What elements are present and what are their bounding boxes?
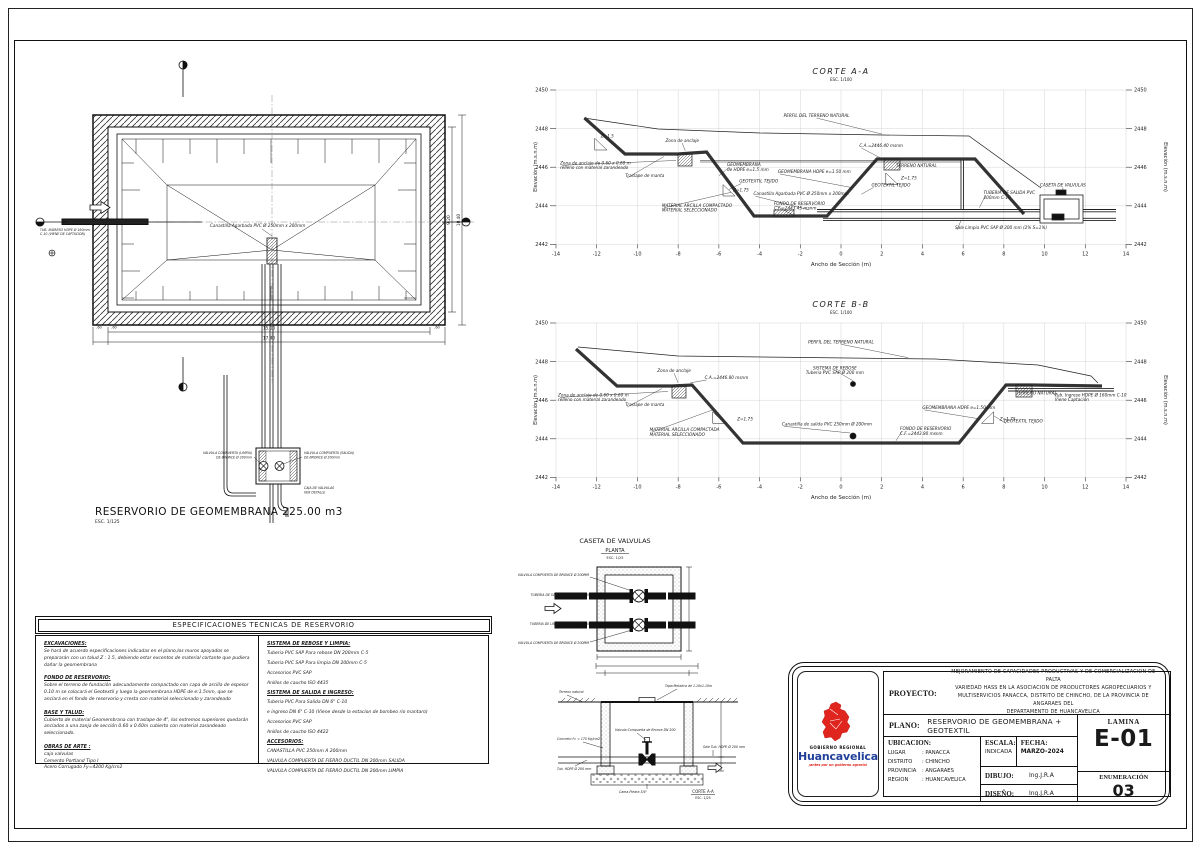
x-tick-label: -2	[798, 484, 803, 490]
diseno-value: Ing.J.R.A	[1029, 790, 1054, 797]
logo-tagline: ¡antes por un gobierno agrario!	[809, 763, 868, 767]
fecha-value: MARZO-2024	[1021, 749, 1077, 755]
y-tick-label: 2446	[1134, 165, 1147, 171]
escala-cell: ESCALA: INDICADA	[981, 737, 1017, 766]
x-tick-label: 6	[962, 251, 965, 257]
y-axis-label: Elevación (m.s.n.m)	[1162, 375, 1169, 425]
grid	[556, 323, 1126, 477]
y-tick-label: 2450	[1134, 321, 1147, 327]
spec-item: Tuberia PVC Para Salida DN 6" C-10	[267, 700, 480, 705]
hatch-tick	[561, 698, 565, 702]
x-tick-label: 10	[1041, 251, 1047, 257]
leader-line	[924, 410, 977, 419]
annotation-text: FONDO DE RESERVORIOC.F.=2443.80 msnm	[900, 426, 952, 436]
tapa-label: Tapa Metalica de 1.10x1.10m	[665, 684, 712, 688]
anchor-trench	[678, 154, 692, 166]
spec-box: EXCAVACIONES:Se hará de acuerdo especifi…	[35, 635, 489, 764]
spec-section-head: EXCAVACIONES:	[44, 642, 250, 647]
hatch-tick	[721, 698, 725, 702]
leader-line	[841, 344, 908, 357]
hatch-tick	[567, 698, 571, 702]
y-tick-label: 2448	[535, 359, 548, 365]
annotation-text: Canastilla Agarbada PVC Ø 250mm x 200mm	[753, 191, 848, 196]
inlet-pipe	[62, 219, 148, 225]
hatch-tick	[709, 698, 713, 702]
y-tick-label: 2448	[535, 126, 548, 132]
ubicacion-row: LUGAR: PANACCA	[888, 749, 980, 758]
y-tick-label: 2442	[535, 242, 548, 248]
annotation-text: Tub. Ingreso HDPE Ø 160mm C-10Viene Capt…	[1055, 392, 1127, 402]
annotation-text: Traslape de manta	[625, 173, 665, 178]
spec-item: VALVULA COMPUERTA DE FIERRO DUCTIL DN 20…	[267, 759, 480, 764]
annotation-text: Canastilla de salida PVC 250mm Ø 200mm	[782, 421, 872, 426]
plan-scale: ESC. 1/125	[95, 520, 343, 525]
y-axis-label: Elevación (m.s.n.m)	[532, 142, 539, 192]
hatch-tick	[703, 698, 707, 702]
ubicacion-row: DISTRITO: CHINCHO	[888, 758, 980, 767]
anchor-trench	[672, 386, 686, 398]
hatch-tick	[585, 698, 589, 702]
spec-section-head: SISTEMA DE SALIDA E INGRESO:	[267, 691, 480, 696]
y-tick-label: 2448	[1134, 126, 1147, 132]
gravel-bed	[591, 774, 703, 785]
pipe-out-label: TUBERIA DE SALIDA DE 200MM C-10	[531, 593, 589, 597]
annotation-text: GEOMEMBRANA HDPE e=1.50 mm	[922, 405, 995, 410]
spec-item: Tuberia PVC SAP Para limpia DN 200mm C-5	[267, 661, 480, 666]
hatch-tick	[727, 698, 731, 702]
leader-line	[674, 373, 678, 383]
drawing-sheet: TUB. INGRESO HDPE Ø 160mm C-10 (VIENE DE…	[0, 0, 1200, 849]
spec-item: Tuberia PVC SAP Para rebose DN 200mm C-5	[267, 651, 480, 656]
lamina-cell: LAMINA E-01	[1078, 715, 1170, 772]
annotation-text: MATERIAL ARCILLA COMPACTADOMATERIAL SELE…	[662, 203, 733, 213]
leader-line	[682, 143, 685, 151]
tub-label: Tub. HDPE Ø 200 mm	[557, 766, 591, 771]
annotation-text: Zona de anclaje de 0.60 x 0.60 mrelleno …	[559, 160, 631, 170]
spec-section-body: Cubierto de material Geomembrana con tra…	[44, 718, 250, 738]
caseta-valvulas-plan: CASETA DE VALVULAS PLANTA ESC. 1/25	[518, 533, 733, 663]
dim-1740: 17.40	[263, 336, 276, 342]
caseta-plan-subtitle: PLANTA	[605, 548, 625, 554]
x-tick-label: -2	[798, 251, 803, 257]
y-tick-label: 2442	[1134, 242, 1147, 248]
y-tick-label: 2444	[535, 204, 548, 210]
valve-bottom-label: VALVULA COMPUERTA DE BRONCE Ø 200MM	[518, 640, 589, 645]
annotation-text: Z=1.75	[732, 187, 749, 192]
benchmark-icon	[49, 250, 55, 256]
x-tick-label: 14	[1123, 251, 1129, 257]
lamina-number: E-01	[1094, 726, 1153, 752]
diseno-label: DISEÑO:	[981, 790, 1029, 798]
annotation-text: GEOTEXTIL TEJIDO	[1004, 418, 1044, 423]
annotation-text: Sale Limpia PVC SAP Ø 200 mm (2% S=1%)	[955, 225, 1047, 230]
proyecto-text: MEJORAMIENTO DE CAPACIDADES PRODUCTIVAS …	[943, 669, 1170, 716]
proyecto-line: MEJORAMIENTO DE CAPACIDADES PRODUCTIVAS …	[943, 669, 1164, 685]
caseta-corte-scale: ESC. 1/25	[695, 796, 710, 800]
y-tick-label: 2444	[1134, 204, 1147, 210]
annotation-text: Z=1.5	[600, 133, 614, 138]
x-tick-label: 0	[839, 251, 842, 257]
caseta-wall	[601, 702, 610, 766]
x-tick-label: -14	[552, 484, 560, 490]
spec-section-head: OBRAS DE ARTE :	[44, 745, 250, 750]
annotation-text: MATERIAL ARCILLA COMPACTADAMATERIAL SELE…	[650, 427, 720, 437]
valve-box-plan	[254, 448, 302, 484]
spec-item: e ingreso DN 6" C-10 (Viene desde la est…	[267, 710, 480, 715]
annotation-text: Zona de anclaje	[656, 368, 691, 373]
leader-line	[780, 174, 851, 187]
y-tick-label: 2444	[535, 437, 548, 443]
leader-line	[861, 148, 879, 158]
gate-valve-icon	[630, 590, 648, 603]
annotation-text: Zona de anclaje de 0.60 x 0.60 mrelleno …	[557, 392, 629, 402]
annotation-text: TERRENO NATURAL	[896, 163, 938, 168]
proyecto-label: PROYECTO:	[884, 689, 943, 698]
valve-right-label: VALVULA COMPUERTA (SALIDA)	[304, 451, 354, 455]
enum-label: ENUMERACIÓN	[1099, 774, 1148, 781]
hatch-tick	[697, 698, 701, 702]
salida-label: Sale Tub. HDPE Ø 200 mm	[703, 744, 745, 749]
corte-a-section: CORTE A-A ESC. 1/100	[528, 62, 1173, 274]
pipe-clean-label: TUBERIA DE LIMPIA DE 160 mm C-10	[530, 622, 589, 626]
ubicacion-row: PROVINCIA: ANGARAES	[888, 767, 980, 776]
concreto-label: Concreto f'c = 175 Kg/cm2	[557, 737, 600, 741]
x-tick-label: -14	[552, 251, 560, 257]
y-tick-label: 2450	[1134, 88, 1147, 94]
x-tick-label: 10	[1041, 484, 1047, 490]
leader-line	[861, 188, 873, 195]
dim-60b: .60	[111, 326, 117, 330]
spec-item: CANASTILLA PVC 250mm A 200mm	[267, 749, 480, 754]
diseno-row: DISEÑO: Ing.J.R.A	[981, 785, 1077, 802]
canastilla-label: Canastilla Agarbada PVC Ø 250mm x 200mm	[210, 223, 305, 228]
spec-section-body: Sobre el terreno de fundación adecuadame…	[44, 683, 250, 703]
fecha-label: FECHA:	[1021, 739, 1077, 747]
dimension-lines	[596, 663, 724, 771]
spec-left-column: EXCAVACIONES:Se hará de acuerdo especifi…	[36, 636, 258, 763]
x-tick-label: 8	[1002, 251, 1005, 257]
hatch-tick	[733, 698, 737, 702]
x-tick-label: 0	[839, 484, 842, 490]
lamina-label: LAMINA	[1108, 718, 1140, 726]
caseta-corte-title: CORTE A-A	[692, 789, 714, 794]
x-tick-label: -10	[633, 251, 641, 257]
dibujo-label: DIBUJO:	[981, 772, 1029, 780]
spec-item: VALVULA COMPUERTA DE FIERRO DUCTIL DN 20…	[267, 769, 480, 774]
x-tick-label: -10	[633, 484, 641, 490]
canastilla	[267, 238, 277, 264]
institution-logo: GOBIERNO REGIONAL Huancavelica ¡antes po…	[797, 671, 879, 797]
leader-line	[784, 426, 850, 433]
spec-section-head: ACCESORIOS:	[267, 740, 480, 745]
valve-left-label: VALVULA COMPUERTA (LIMPIA)	[203, 451, 252, 455]
spec-item: Anillos de caucho ISO 4435	[267, 681, 480, 686]
x-tick-label: -12	[593, 484, 601, 490]
escala-value: INDICADA	[985, 749, 1016, 755]
annotation-text: GEOMEMBRANAde HDPE e=1.5 mm	[727, 162, 769, 172]
caseta-plan-scale: ESC. 1/25	[607, 556, 624, 560]
annotation-text: C.A.=2446.40 msnm	[859, 143, 903, 148]
ubicacion-cell: UBICACION: LUGAR: PANACCADISTRITO: CHINC…	[884, 737, 981, 802]
canastilla-section	[774, 210, 794, 217]
x-tick-label: 14	[1123, 484, 1129, 490]
x-tick-label: 2	[880, 484, 883, 490]
hatch-tick	[579, 698, 583, 702]
annotation-text: Traslape de manta	[625, 402, 665, 407]
x-tick-label: -4	[757, 251, 762, 257]
inlet-label-2: C-10 (VIENE DE CAPTACION)	[40, 232, 85, 236]
ubicacion-rows: LUGAR: PANACCADISTRITO: CHINCHOPROVINCIA…	[888, 749, 980, 785]
annotation-text: GEOTEXTIL TEJIDO	[739, 179, 779, 184]
logo-line2: Huancavelica	[798, 750, 878, 763]
annotations: PERFIL DEL TERRENO NATURALSISTEMA DE REB…	[557, 339, 1127, 440]
annotation-text: PERFIL DEL TERRENO NATURAL	[784, 113, 850, 118]
x-tick-label: 12	[1082, 484, 1088, 490]
proyecto-line: MULTISERVICIOS PANACCA, DISTRITO DE CHIN…	[943, 693, 1164, 709]
valve-house-section	[1040, 190, 1083, 223]
corte-a-scale: ESC. 1/100	[830, 77, 852, 82]
y-axis-label: Elevación (m.s.n.m)	[532, 375, 539, 425]
spec-section-head: SISTEMA DE REBOSE Y LIMPIA:	[267, 642, 480, 647]
plano-label: PLANO:	[884, 721, 927, 730]
title-block-table: PROYECTO: MEJORAMIENTO DE CAPACIDADES PR…	[883, 671, 1171, 797]
y-tick-label: 2446	[1134, 398, 1147, 404]
plan-title: RESERVORIO DE GEOMEMBRANA 225.00 m3	[95, 506, 343, 518]
valvula-label: Valvula Compuerta de Bronce DN 200	[615, 728, 676, 732]
spec-section-body: Se hará de acuerdo especificaciones indi…	[44, 649, 250, 669]
x-tick-label: -8	[676, 484, 681, 490]
annotation-text: Z=1.75	[900, 176, 917, 181]
dim-920: 9.20	[446, 215, 452, 225]
reservoir-plan-drawing: TUB. INGRESO HDPE Ø 160mm C-10 (VIENE DE…	[10, 45, 520, 545]
title-block: GOBIERNO REGIONAL Huancavelica ¡antes po…	[788, 662, 1170, 806]
x-tick-label: 4	[921, 484, 924, 490]
plano-row: PLANO: RESERVORIO DE GEOMEMBRANA + GEOTE…	[884, 715, 1077, 737]
valve-left-label-2: DE BRONCE Ø 200mm	[216, 455, 252, 460]
axes: -14-12-10-8-6-4-202468101214245024502448…	[532, 321, 1169, 501]
corte-b-section: CORTE B-B ESC. 1/100 -14-12-10-8-6-4-202…	[528, 295, 1173, 507]
spec-right-column: SISTEMA DE REBOSE Y LIMPIA:Tuberia PVC S…	[258, 636, 488, 763]
x-tick-label: 12	[1082, 251, 1088, 257]
escala-label: ESCALA:	[985, 739, 1016, 747]
y-tick-label: 2450	[535, 321, 548, 327]
corte-a-title: CORTE A-A	[812, 67, 869, 76]
plan-title-block: RESERVORIO DE GEOMEMBRANA 225.00 m3 ESC.…	[95, 506, 343, 525]
spec-item: Accesorios PVC SAP	[267, 720, 480, 725]
spec-item: Anillos de caucho ISO 4422	[267, 730, 480, 735]
dim-60c: .60	[434, 326, 440, 330]
caseta-wall	[684, 702, 693, 766]
x-tick-label: 2	[880, 251, 883, 257]
x-tick-label: -12	[593, 251, 601, 257]
dibujo-row: DIBUJO: Ing.J.R.A	[981, 767, 1077, 785]
spec-header: ESPECIFICACIONES TECNICAS DE RESERVORIO	[35, 616, 492, 634]
annotation-text: GEOMEMBRANA HDPE e=1.50 mm	[778, 169, 851, 174]
hatch-tick	[591, 698, 595, 702]
fecha-cell: FECHA: MARZO-2024	[1017, 737, 1077, 766]
annotation-text: CASETA DE VALVULAS	[1040, 183, 1086, 188]
proyecto-row: PROYECTO: MEJORAMIENTO DE CAPACIDADES PR…	[884, 672, 1170, 715]
rebose-pipe-dot	[851, 382, 856, 387]
leader-line	[817, 118, 882, 134]
x-tick-label: 6	[962, 484, 965, 490]
canastilla-dot	[850, 433, 856, 439]
y-tick-label: 2442	[535, 475, 548, 481]
y-tick-label: 2448	[1134, 359, 1147, 365]
proyecto-line: VARIEDAD HASS EN LA ASOCIACION DE PRODUC…	[943, 685, 1164, 693]
annotations: PERFIL DEL TERRENO NATURALZona de anclaj…	[559, 113, 1086, 230]
annotation-text: Z=1.75	[736, 416, 753, 421]
valve-below-label-2: VER DETALLE	[304, 491, 325, 495]
y-tick-label: 2442	[1134, 475, 1147, 481]
hatch-tick	[715, 698, 719, 702]
valve-below-label: CAJA DE VALVULAS	[304, 486, 334, 490]
huancavelica-map-icon	[820, 701, 856, 743]
plano-value: RESERVORIO DE GEOMEMBRANA + GEOTEXTIL	[927, 717, 1076, 735]
x-tick-label: -8	[676, 251, 681, 257]
gate-valve-icon	[630, 619, 648, 632]
annotation-text: PERFIL DEL TERRENO NATURAL	[808, 339, 874, 344]
dim-1040: 10.40	[456, 214, 462, 227]
spec-item: Accesorios PVC SAP	[267, 671, 480, 676]
y-tick-label: 2444	[1134, 437, 1147, 443]
valve-right-label-2: DE BRONCE Ø 200mm	[304, 455, 340, 460]
annotation-text: GEOTEXTIL TEJIDO	[872, 183, 912, 188]
annotation-text: TUBERIA DE SALIDA PVC200mm C-10	[983, 190, 1035, 200]
x-tick-label: -6	[716, 484, 721, 490]
dim-60a: .60	[96, 326, 102, 330]
spec-section-head: FONDO DE RESERVORIO:	[44, 676, 250, 681]
x-tick-label: -6	[716, 251, 721, 257]
corte-b-scale: ESC. 1/100	[830, 310, 852, 315]
gate-valve-section-icon	[639, 738, 655, 766]
caseta-valvulas-corte: Terreno natural Tapa Metalica de 1.10x1.…	[553, 658, 768, 810]
annotation-text: Zona de anclaje	[664, 138, 699, 143]
annotation-text: SISTEMA DE REBOSETuberia PVC SAP Ø 200 m…	[806, 365, 864, 375]
x-tick-label: 8	[1002, 484, 1005, 490]
dim-15: 15.00	[263, 326, 276, 332]
dibujo-value: Ing.J.R.A	[1029, 772, 1054, 779]
ubicacion-label: UBICACION:	[888, 739, 980, 747]
enumeracion-cell: ENUMERACIÓN 03	[1078, 772, 1170, 802]
x-axis-label: Ancho de Sección (m)	[811, 494, 871, 501]
corte-b-title: CORTE B-B	[812, 300, 869, 309]
annotation-text: C.A.=2446.80 msnm	[705, 375, 749, 380]
y-axis-label: Elevación (m.s.n.m)	[1162, 142, 1169, 192]
caseta-plan-title: CASETA DE VALVULAS	[579, 537, 650, 545]
cama-label: Cama-Piedra 3/4"	[619, 790, 648, 794]
valve-top-label: VALVULA COMPUERTA DE BRONCE Ø 200MM	[518, 572, 589, 577]
ubicacion-row: REGION: HUANCAVELICA	[888, 776, 980, 785]
x-tick-label: -4	[757, 484, 762, 490]
spec-section-head: BASE Y TALUD:	[44, 711, 250, 716]
x-axis-label: Ancho de Sección (m)	[811, 261, 871, 268]
leader-line	[690, 380, 706, 383]
enum-number: 03	[1113, 781, 1135, 800]
spec-section-body: caja valvulas Cemento Portland Tipo I Ac…	[44, 752, 250, 772]
spec-title: ESPECIFICACIONES TECNICAS DE RESERVORIO	[38, 619, 490, 632]
y-tick-label: 2450	[535, 88, 548, 94]
flow-arrow-icon	[545, 604, 561, 614]
x-tick-label: 4	[921, 251, 924, 257]
terreno-label: Terreno natural	[559, 690, 584, 694]
